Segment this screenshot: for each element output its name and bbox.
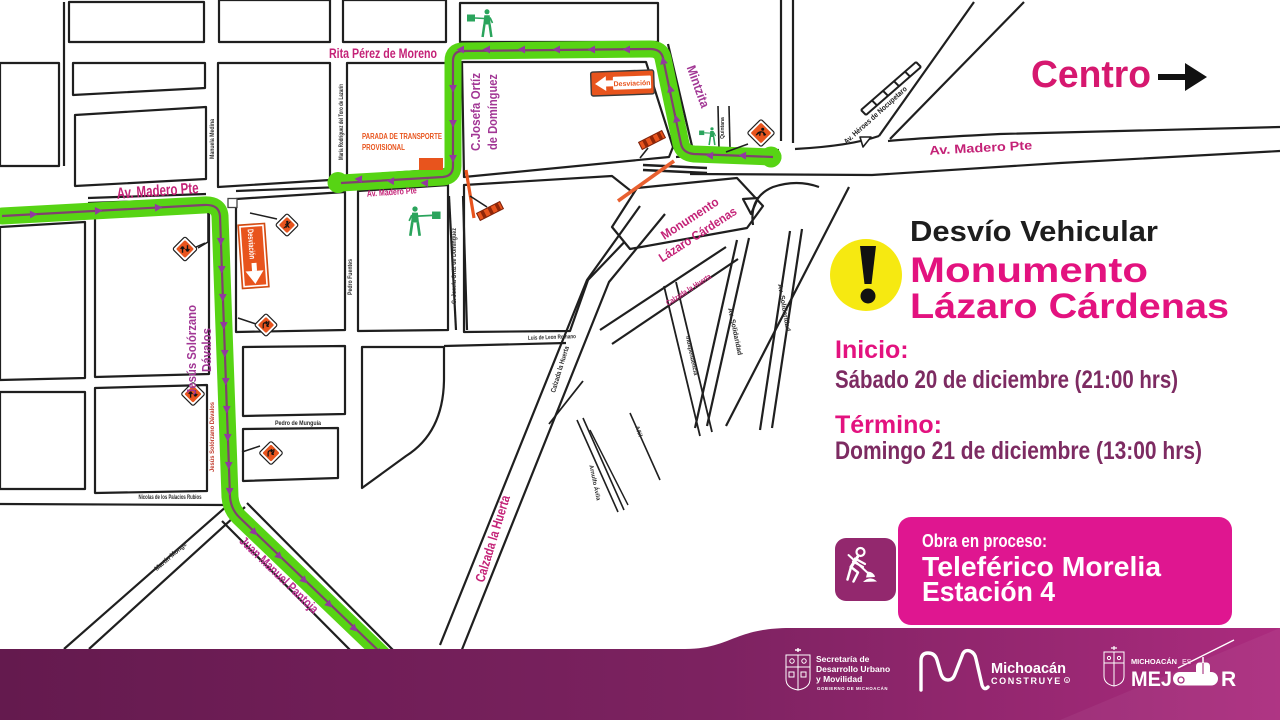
svg-text:Secretaría de: Secretaría de: [816, 654, 870, 664]
svg-text:CONSTRUYE: CONSTRUYE: [991, 676, 1062, 686]
svg-text:Desviación: Desviación: [613, 80, 650, 88]
svg-text:Pedro de Munguía: Pedro de Munguía: [275, 420, 321, 427]
svg-text:Desarrollo Urbano: Desarrollo Urbano: [816, 664, 890, 674]
svg-text:R: R: [1221, 668, 1236, 691]
svg-text:de Domínguez: de Domínguez: [485, 74, 500, 150]
svg-text:ES: ES: [1182, 659, 1192, 666]
svg-text:María Rodríguez del Toro de La: María Rodríguez del Toro de Lazarín: [339, 84, 345, 160]
svg-text:R: R: [1066, 679, 1069, 683]
svg-text:Desvío Vehicular: Desvío Vehicular: [910, 216, 1158, 248]
svg-text:Lázaro Cárdenas: Lázaro Cárdenas: [910, 287, 1229, 326]
svg-text:Jesús Solórzano: Jesús Solórzano: [184, 305, 199, 395]
svg-text:Nicolas de los Palacios Rubios: Nicolas de los Palacios Rubios: [139, 495, 202, 501]
svg-text:y Movilidad: y Movilidad: [816, 674, 862, 684]
svg-text:PARADA DE TRANSPORTE: PARADA DE TRANSPORTE: [362, 131, 442, 141]
svg-text:Domingo 21 de diciembre (13:00: Domingo 21 de diciembre (13:00 hrs): [835, 437, 1202, 465]
svg-text:MICHOACÁN: MICHOACÁN: [1131, 657, 1177, 666]
svg-text:PROVISIONAL: PROVISIONAL: [362, 142, 405, 152]
svg-text:Monumento: Monumento: [910, 251, 1148, 290]
svg-text:Obra en proceso:: Obra en proceso:: [922, 531, 1047, 551]
svg-text:Término:: Término:: [835, 411, 942, 439]
svg-text:Dávalos: Dávalos: [199, 328, 214, 372]
svg-text:C.Josefa Ortíz: C.Josefa Ortíz: [468, 73, 483, 151]
svg-text:Pedro Fuentes: Pedro Fuentes: [347, 259, 354, 295]
svg-text:Desviación: Desviación: [246, 229, 258, 260]
svg-text:Quintana: Quintana: [720, 117, 726, 139]
svg-text:GOBIERNO DE MICHOACÁN: GOBIERNO DE MICHOACÁN: [817, 686, 888, 691]
svg-text:Michoacán: Michoacán: [991, 661, 1066, 677]
svg-text:Centro: Centro: [1031, 54, 1151, 96]
svg-text:Rita Pérez de Moreno: Rita Pérez de Moreno: [329, 46, 437, 61]
svg-text:Estación 4: Estación 4: [922, 576, 1055, 607]
svg-text:Jesús Solórzano Dávalos: Jesús Solórzano Dávalos: [209, 402, 216, 472]
svg-text:C. Josefa Ortíz de Domínguez: C. Josefa Ortíz de Domínguez: [451, 227, 458, 304]
svg-text:MEJ: MEJ: [1131, 668, 1172, 691]
svg-text:Sábado 20 de diciembre (21:00: Sábado 20 de diciembre (21:00 hrs): [835, 366, 1178, 394]
svg-text:Manuela Medina: Manuela Medina: [209, 119, 216, 159]
svg-text:Inicio:: Inicio:: [835, 336, 909, 364]
